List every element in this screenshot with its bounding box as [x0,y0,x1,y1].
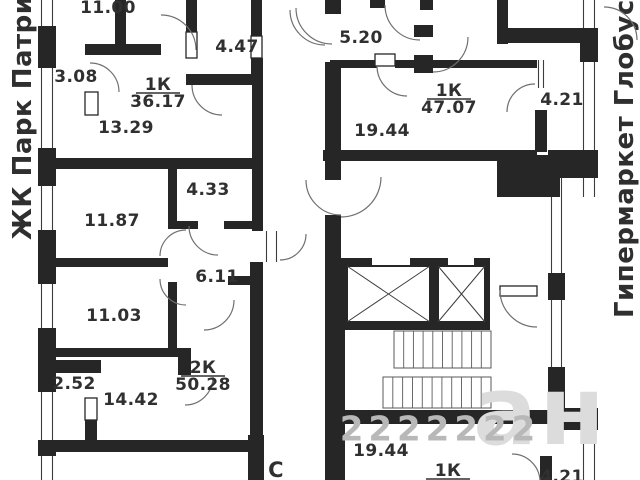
wall [168,221,198,229]
wall [251,58,263,74]
room-area-label: 13.29 [98,118,154,138]
floorplan-page: ЖК Парк Патриот Гипермаркет Глобус ан222… [0,0,640,480]
apartment-type-label: 1К [435,461,462,480]
door-leaf [85,398,97,420]
elevator-door-gap [372,258,410,266]
wall [535,110,547,152]
wall [85,420,97,440]
door-swing-arc [507,84,535,112]
window-strip [263,231,280,262]
wall [186,74,263,85]
room-area-label: 5.20 [339,28,383,48]
door-swing-arc [160,230,186,256]
door-swing-arc [192,85,222,115]
apartment-area-label: 47.07 [421,98,477,118]
compass-north-label: С [268,458,284,480]
room-area-label: 4.21 [540,467,584,480]
floorplan-svg: ан222222211.004.473.0813.2911.874.336.11… [0,0,640,480]
door-leaf [375,54,395,66]
wall [168,169,177,229]
door-swing-arc [604,7,637,40]
wall [38,440,254,452]
room-area-label: 4.33 [186,180,230,200]
door-swing-arc [204,300,234,330]
room-area-label: 11.87 [84,211,140,231]
wall [395,60,537,68]
door-swing-arc [306,180,341,215]
wall [250,262,263,440]
wall [248,435,264,480]
door-leaf [500,286,537,296]
wall [414,25,433,37]
wall [252,169,263,231]
door-swing-arc [189,226,218,255]
room-area-label: 4.21 [540,90,584,110]
wall [325,215,341,263]
room-area-label: 6.11 [195,267,239,287]
wall [38,258,168,267]
wall [56,360,101,373]
wall [370,0,385,8]
wall [330,60,377,68]
room-area-label: 11.03 [86,306,142,326]
apartment-area-label: 36.17 [130,92,186,112]
wall [548,273,565,300]
wall [38,26,56,68]
wall [252,74,263,169]
wall [580,30,598,62]
door-leaf [85,92,98,115]
wall [38,158,263,169]
door-swing-arc [290,10,325,45]
wall [251,0,262,36]
room-area-label: 19.44 [354,121,410,141]
wall [325,62,341,180]
room-area-label: 19.44 [353,441,409,461]
door-swing-arc [341,177,381,217]
room-area-label: 14.42 [103,390,159,410]
wall [168,282,177,348]
wall [224,221,252,229]
wall [325,0,341,14]
wall [548,150,598,178]
door-swing-arc [377,66,407,96]
elevator-door-gap [448,258,474,266]
room-area-label: 4.47 [215,37,259,57]
wall [38,230,56,284]
room-area-label: 3.08 [54,67,98,87]
apartment-area-label: 50.28 [175,375,231,395]
wall [420,0,433,10]
room-area-label: 11.00 [80,0,136,18]
wall [85,44,161,55]
door-swing-arc [280,234,306,260]
wall [38,348,191,357]
room-area-label: 2.52 [52,374,96,394]
